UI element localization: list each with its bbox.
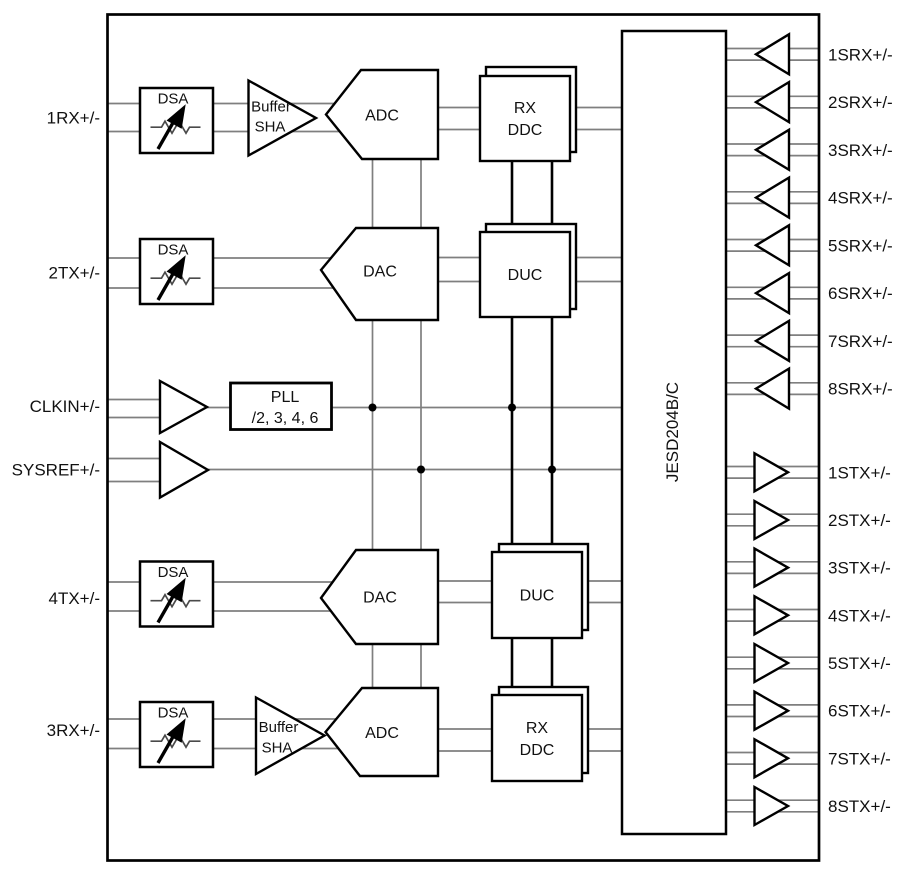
svg-text:Buffer: Buffer xyxy=(251,99,291,116)
svg-text:SYSREF+/-: SYSREF+/- xyxy=(12,461,100,480)
svg-text:1STX+/-: 1STX+/- xyxy=(828,463,891,482)
svg-text:Buffer: Buffer xyxy=(259,719,299,736)
svg-text:4STX+/-: 4STX+/- xyxy=(828,606,891,625)
svg-text:SHA: SHA xyxy=(262,740,293,757)
svg-text:/2, 3, 4, 6: /2, 3, 4, 6 xyxy=(252,410,319,427)
svg-text:5SRX+/-: 5SRX+/- xyxy=(828,236,893,255)
svg-text:1SRX+/-: 1SRX+/- xyxy=(828,45,893,64)
svg-text:3STX+/-: 3STX+/- xyxy=(828,559,891,578)
svg-text:2STX+/-: 2STX+/- xyxy=(828,511,891,530)
svg-text:ADC: ADC xyxy=(365,725,399,742)
svg-text:PLL: PLL xyxy=(271,389,300,406)
svg-text:8STX+/-: 8STX+/- xyxy=(828,797,891,816)
svg-text:2TX+/-: 2TX+/- xyxy=(49,264,101,283)
svg-text:6SRX+/-: 6SRX+/- xyxy=(828,284,893,303)
svg-text:DUC: DUC xyxy=(508,267,543,284)
svg-text:4SRX+/-: 4SRX+/- xyxy=(828,189,893,208)
svg-text:1RX+/-: 1RX+/- xyxy=(47,109,100,128)
svg-text:SHA: SHA xyxy=(255,119,286,136)
svg-text:DAC: DAC xyxy=(363,589,397,606)
svg-text:CLKIN+/-: CLKIN+/- xyxy=(30,397,100,416)
svg-text:5STX+/-: 5STX+/- xyxy=(828,654,891,673)
svg-text:DDC: DDC xyxy=(520,742,555,759)
svg-text:3RX+/-: 3RX+/- xyxy=(47,721,100,740)
svg-text:RX: RX xyxy=(514,100,537,117)
svg-text:DAC: DAC xyxy=(363,263,397,280)
svg-text:DDC: DDC xyxy=(508,122,543,139)
svg-text:3SRX+/-: 3SRX+/- xyxy=(828,141,893,160)
svg-text:8SRX+/-: 8SRX+/- xyxy=(828,380,893,399)
svg-text:2SRX+/-: 2SRX+/- xyxy=(828,93,893,112)
svg-text:DUC: DUC xyxy=(520,587,555,604)
svg-text:ADC: ADC xyxy=(365,107,399,124)
svg-text:4TX+/-: 4TX+/- xyxy=(49,589,101,608)
svg-text:7STX+/-: 7STX+/- xyxy=(828,749,891,768)
svg-text:6STX+/-: 6STX+/- xyxy=(828,702,891,721)
svg-text:RX: RX xyxy=(526,720,549,737)
svg-text:7SRX+/-: 7SRX+/- xyxy=(828,332,893,351)
svg-text:JESD204B/C: JESD204B/C xyxy=(663,382,682,482)
